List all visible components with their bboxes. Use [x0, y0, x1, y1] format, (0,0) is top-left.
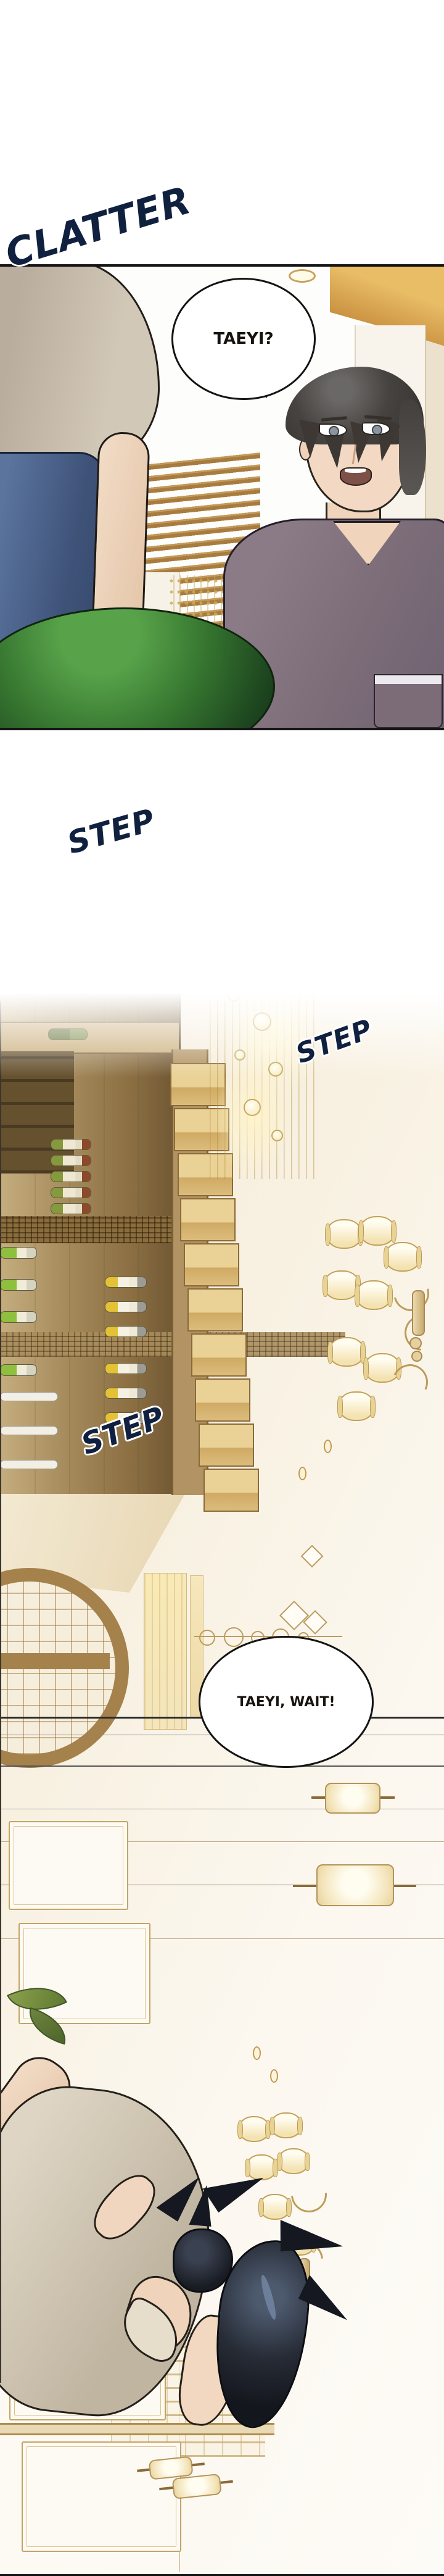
wine-bottle: [0, 1279, 37, 1291]
speech-bubble-taeyi: TAEYI?: [171, 278, 316, 400]
sfx-clatter: CLATTER: [0, 177, 196, 276]
wine-bottle: [51, 1155, 91, 1166]
stair-step: [199, 1423, 254, 1467]
wine-bottle: [0, 1247, 37, 1259]
wine-bottle: [105, 1301, 147, 1312]
gold-dot: [253, 2046, 261, 2060]
iris: [329, 426, 339, 436]
wine-bottle: [51, 1171, 91, 1182]
man-mouth-open: [340, 467, 372, 486]
wine-bottle: [51, 1203, 91, 1214]
chandelier-sparkles: [210, 969, 319, 1179]
cellar-top-shelf: [0, 1022, 179, 1054]
wine-bottle: [48, 1028, 88, 1040]
wine-bottle: [0, 1364, 37, 1376]
iris: [372, 425, 382, 435]
white-bottle: [0, 1392, 58, 1401]
wine-bottle: [51, 1139, 91, 1150]
stair-step: [184, 1243, 239, 1286]
bubble1-text: TAEYI?: [213, 330, 273, 348]
wine-bottle: [105, 1277, 147, 1288]
wall-panel-frame: [9, 1821, 128, 1910]
panel2-left-edge: [0, 1001, 1, 2383]
panel-2: TAEYI, WAIT!: [0, 969, 444, 2576]
mesh-shelf: [0, 1216, 179, 1243]
man-chest-pocket: [374, 674, 443, 728]
white-bottle: [0, 1460, 58, 1469]
stair-step: [187, 1288, 243, 1332]
wine-bottle: [105, 1326, 147, 1337]
gold-dot: [298, 1467, 306, 1480]
stair-step: [180, 1198, 236, 1241]
wine-bottle: [105, 1363, 147, 1374]
lattice-band: [0, 1653, 110, 1669]
gold-double-band: [0, 2423, 274, 2435]
molding-line: [0, 1765, 444, 1767]
sfx-step-1: STEP: [64, 802, 159, 861]
chandelier-1: [319, 1216, 444, 1432]
man-head: [281, 365, 432, 551]
gold-dot: [270, 2069, 278, 2083]
glow-strip: [144, 1573, 187, 1730]
white-bottle: [0, 1426, 58, 1435]
ceiling-light-icon: [289, 269, 316, 283]
gold-dot: [324, 1440, 332, 1453]
wall-sconce: [293, 1859, 416, 1912]
panel-1: TAEYI?: [0, 264, 444, 730]
wall-sconce: [311, 1779, 395, 1816]
stair-step: [191, 1333, 247, 1377]
webtoon-page: TAEYI? CLATTER STEP: [0, 0, 444, 2576]
wine-bottle: [51, 1187, 91, 1198]
wine-bottle: [0, 1311, 37, 1323]
bubble2-text: TAEYI, WAIT!: [237, 1694, 335, 1710]
speech-bubble-taeyi-wait: TAEYI, WAIT!: [199, 1636, 374, 1768]
man-eye-right: [362, 422, 390, 435]
wine-bottle: [105, 1388, 147, 1399]
man-eye-left: [319, 423, 347, 436]
stair-step: [195, 1378, 250, 1422]
hanging-diamond: [301, 1545, 324, 1568]
stair-step: [203, 1469, 259, 1512]
